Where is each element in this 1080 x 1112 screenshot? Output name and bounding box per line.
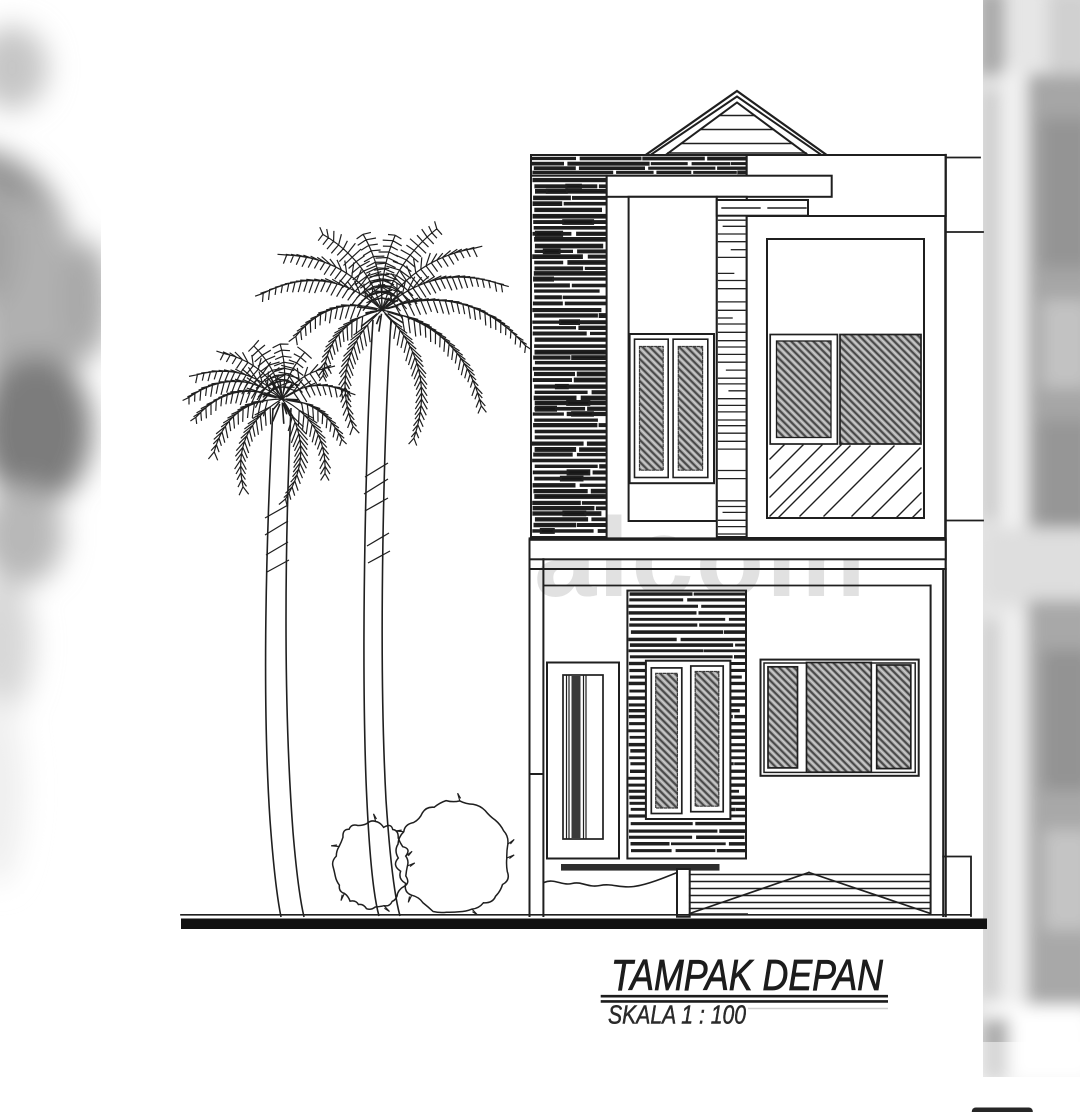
svg-text:TAMPAK DEPAN: TAMPAK DEPAN	[611, 951, 883, 1000]
svg-text:SKALA 1 : 100: SKALA 1 : 100	[608, 1000, 746, 1030]
